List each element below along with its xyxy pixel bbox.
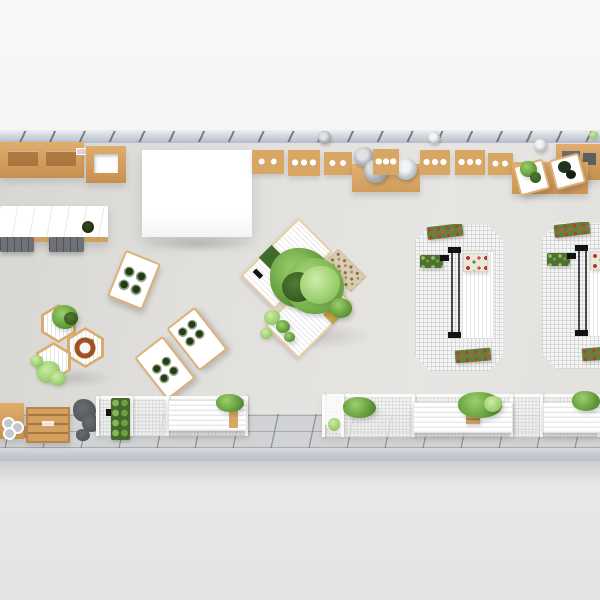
bench-planter — [216, 394, 244, 412]
rack-divider — [578, 249, 580, 335]
box-shelf — [86, 146, 126, 183]
sink-cabinet — [252, 150, 284, 174]
rust-flower-ring — [73, 336, 97, 360]
rack-tab — [575, 245, 588, 251]
wall-pot — [428, 132, 440, 144]
white-pot — [3, 427, 16, 440]
counter-inset — [46, 151, 76, 166]
plant-pot — [134, 270, 148, 284]
rack-divider — [585, 249, 587, 335]
sink-cabinet — [373, 149, 399, 175]
stacked-pot-planter — [111, 398, 130, 440]
canopy-floor-shadow — [145, 236, 250, 252]
green-plant — [530, 172, 541, 183]
rack-tab — [448, 332, 461, 338]
bottom-wall-shadow — [0, 461, 600, 485]
fence-planter — [572, 391, 600, 411]
rack-tab — [575, 330, 588, 336]
sink-cabinet — [420, 150, 450, 175]
hexagon-plant — [64, 312, 78, 325]
box-shelf-opening — [94, 154, 118, 173]
red-flower-box — [426, 223, 463, 240]
fence-post — [96, 396, 99, 436]
bar-stool — [0, 237, 34, 252]
crate-label — [42, 421, 54, 426]
rack-divider — [458, 251, 460, 337]
sink-cabinet — [324, 152, 352, 175]
dark-plant — [76, 429, 90, 441]
red-flower-box — [553, 221, 590, 238]
mesh-display-rack — [541, 222, 600, 370]
sink-cabinet — [455, 150, 485, 175]
red-flower-tray — [590, 251, 600, 270]
bar-stool — [49, 237, 84, 252]
scene-render — [0, 0, 600, 600]
plant-pot — [122, 265, 136, 279]
rack-handle — [567, 253, 576, 259]
rack-handle — [440, 255, 449, 261]
bottom-wall — [0, 448, 600, 461]
white-canopy — [142, 150, 252, 237]
bar-plant — [82, 221, 94, 233]
gray-pot — [318, 131, 331, 144]
rack-divider — [451, 251, 453, 337]
fence-post — [130, 396, 133, 436]
red-flower-tray — [463, 253, 488, 272]
island-handle — [253, 268, 264, 279]
plant-pot — [117, 278, 131, 292]
red-flower-box — [455, 347, 492, 363]
island-ground-plant — [284, 332, 295, 342]
wooden-console — [0, 403, 24, 439]
red-flower-box — [582, 345, 600, 361]
sink-cabinet — [288, 150, 320, 176]
counter-inset — [8, 151, 38, 166]
sink-cabinet — [488, 153, 513, 175]
plant-pot — [129, 283, 143, 297]
mesh-display-rack — [414, 224, 504, 372]
island-side-plant — [330, 298, 352, 318]
wall-bracket-hooks — [0, 131, 600, 142]
fence-planter — [343, 397, 376, 418]
silver-pot — [534, 139, 547, 152]
wooden-crate — [26, 407, 70, 443]
wall-counter-left — [0, 142, 84, 178]
rack-tab — [448, 247, 461, 253]
dark-plant-pot — [566, 170, 576, 179]
